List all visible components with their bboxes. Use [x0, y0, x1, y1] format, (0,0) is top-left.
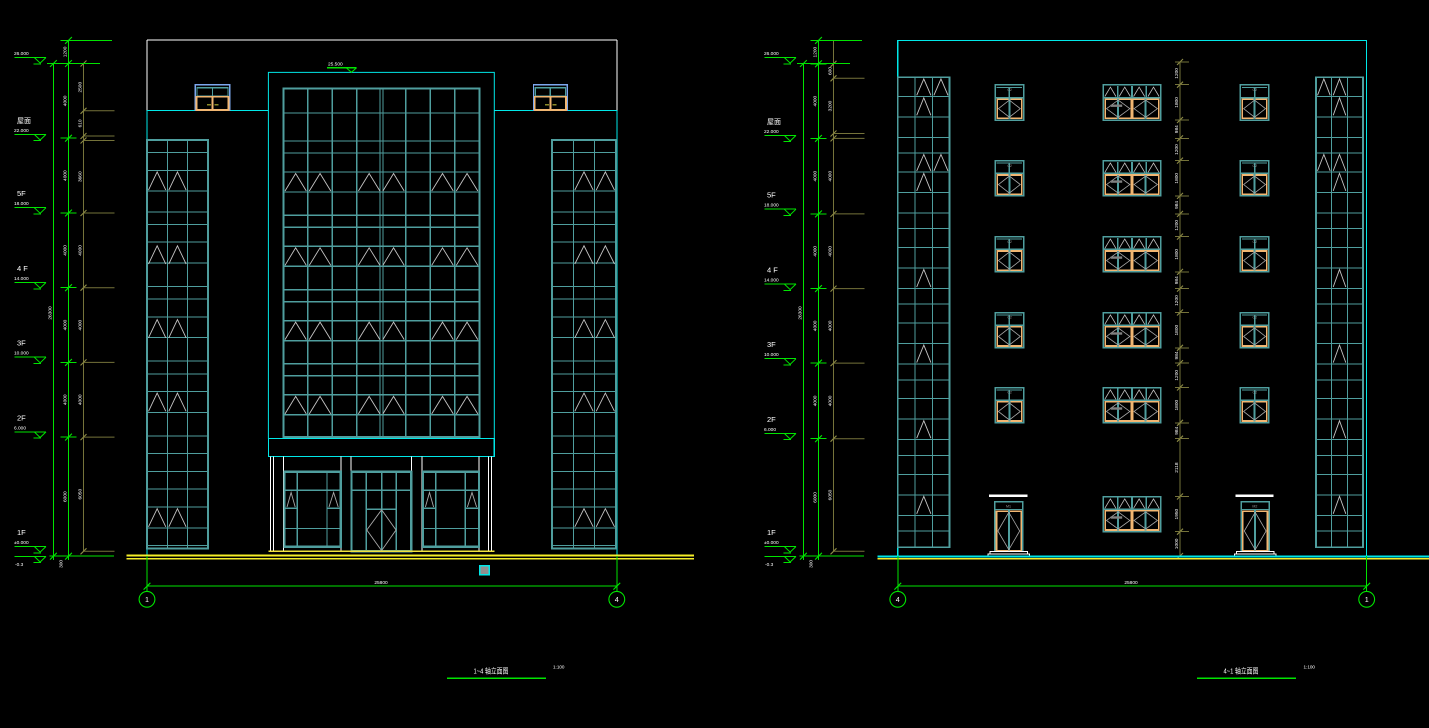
svg-text:4000: 4000	[78, 319, 84, 330]
svg-text:C2: C2	[1253, 88, 1258, 92]
svg-text:2F: 2F	[17, 413, 26, 422]
svg-text:610: 610	[78, 119, 84, 127]
svg-text:C2: C2	[1253, 316, 1258, 320]
svg-text:4000: 4000	[813, 246, 819, 257]
svg-text:1: 1	[145, 595, 149, 604]
svg-text:4000: 4000	[63, 394, 69, 405]
svg-text:屋面: 屋面	[17, 117, 31, 125]
svg-text:1:100: 1:100	[1304, 665, 1316, 671]
svg-text:M2: M2	[1252, 505, 1257, 509]
svg-text:10.000: 10.000	[764, 352, 779, 358]
svg-text:M1: M1	[1006, 505, 1011, 509]
svg-text:300: 300	[809, 560, 815, 568]
svg-text:4: 4	[615, 595, 619, 604]
svg-text:4000: 4000	[813, 395, 819, 406]
svg-text:984: 984	[1174, 276, 1180, 284]
svg-text:C2: C2	[1253, 240, 1258, 244]
svg-text:-0.3: -0.3	[765, 562, 774, 568]
svg-text:6.000: 6.000	[14, 425, 26, 431]
svg-text:4000: 4000	[828, 171, 834, 182]
svg-text:4 F: 4 F	[17, 264, 28, 273]
svg-text:1F: 1F	[17, 528, 26, 537]
svg-text:1800: 1800	[1174, 173, 1180, 184]
svg-text:C2: C2	[1253, 164, 1258, 168]
svg-text:984: 984	[1174, 125, 1180, 133]
svg-text:1200: 1200	[813, 46, 819, 57]
svg-text:6.000: 6.000	[764, 427, 776, 433]
svg-text:4000: 4000	[813, 170, 819, 181]
svg-text:26300: 26300	[797, 306, 803, 320]
svg-text:26.000: 26.000	[764, 51, 779, 57]
svg-text:3F: 3F	[767, 340, 776, 349]
svg-text:C2: C2	[1007, 240, 1012, 244]
svg-text:1800: 1800	[1174, 399, 1180, 410]
svg-text:4000: 4000	[813, 95, 819, 106]
svg-text:18.000: 18.000	[764, 203, 779, 209]
svg-text:1200: 1200	[1174, 68, 1180, 79]
svg-text:1800: 1800	[1174, 249, 1180, 260]
svg-text:10.000: 10.000	[14, 351, 29, 357]
svg-text:1800: 1800	[1174, 97, 1180, 108]
svg-text:1000: 1000	[1174, 538, 1180, 549]
svg-text:14.000: 14.000	[14, 276, 29, 282]
svg-text:4000: 4000	[63, 319, 69, 330]
svg-text:25800: 25800	[1124, 580, 1138, 586]
svg-text:5F: 5F	[767, 191, 776, 200]
svg-text:C2: C2	[1007, 164, 1012, 168]
svg-text:300: 300	[59, 560, 65, 568]
svg-text:4000: 4000	[63, 245, 69, 256]
svg-text:1200: 1200	[1174, 370, 1180, 381]
svg-text:2118: 2118	[1174, 462, 1180, 473]
svg-text:984: 984	[1174, 426, 1180, 434]
svg-text:4~1 轴立面图: 4~1 轴立面图	[1224, 667, 1259, 676]
svg-text:3200: 3200	[828, 100, 834, 111]
svg-text:1F: 1F	[767, 528, 776, 537]
svg-text:4: 4	[896, 595, 900, 604]
svg-text:1200: 1200	[1174, 144, 1180, 155]
svg-text:26.000: 26.000	[14, 51, 29, 57]
svg-text:C2: C2	[1007, 316, 1012, 320]
svg-text:18.000: 18.000	[14, 201, 29, 207]
svg-text:4000: 4000	[63, 170, 69, 181]
svg-text:1~4 轴立面图: 1~4 轴立面图	[474, 667, 509, 676]
svg-text:±0.000: ±0.000	[764, 540, 779, 546]
svg-text:1: 1	[1365, 595, 1369, 604]
svg-text:3660: 3660	[78, 171, 84, 182]
svg-text:4000: 4000	[828, 395, 834, 406]
svg-text:22.000: 22.000	[764, 129, 779, 135]
svg-text:3F: 3F	[17, 339, 26, 348]
svg-text:C2: C2	[1007, 88, 1012, 92]
svg-text:984: 984	[1174, 351, 1180, 359]
svg-text:6000: 6000	[813, 492, 819, 503]
svg-text:C2: C2	[1007, 391, 1012, 395]
svg-text:25800: 25800	[374, 580, 388, 586]
svg-text:2500: 2500	[78, 82, 84, 93]
svg-text:1200: 1200	[63, 46, 69, 57]
svg-text:6050: 6050	[78, 489, 84, 500]
svg-text:2F: 2F	[767, 415, 776, 424]
svg-text:6000: 6000	[63, 491, 69, 502]
svg-text:600: 600	[828, 67, 834, 75]
svg-text:14.000: 14.000	[764, 278, 779, 284]
svg-text:1:100: 1:100	[553, 665, 565, 671]
svg-text:1950: 1950	[1174, 508, 1180, 519]
svg-text:1200: 1200	[1174, 295, 1180, 306]
svg-text:4000: 4000	[813, 320, 819, 331]
svg-text:6050: 6050	[828, 489, 834, 500]
svg-text:26300: 26300	[47, 306, 53, 320]
svg-text:4000: 4000	[78, 394, 84, 405]
svg-text:4000: 4000	[63, 95, 69, 106]
svg-text:4 F: 4 F	[767, 266, 778, 275]
svg-text:C2: C2	[1253, 391, 1258, 395]
svg-text:4000: 4000	[828, 320, 834, 331]
svg-text:4000: 4000	[78, 245, 84, 256]
svg-text:984: 984	[1174, 201, 1180, 209]
svg-text:-0.3: -0.3	[15, 562, 24, 568]
svg-text:±0.000: ±0.000	[14, 540, 29, 546]
svg-text:屋面: 屋面	[767, 118, 781, 126]
svg-text:1200: 1200	[1174, 220, 1180, 231]
svg-text:25.500: 25.500	[328, 61, 343, 67]
svg-text:5F: 5F	[17, 189, 26, 198]
svg-text:22.000: 22.000	[14, 128, 29, 134]
svg-text:4000: 4000	[828, 246, 834, 257]
svg-text:1800: 1800	[1174, 324, 1180, 335]
